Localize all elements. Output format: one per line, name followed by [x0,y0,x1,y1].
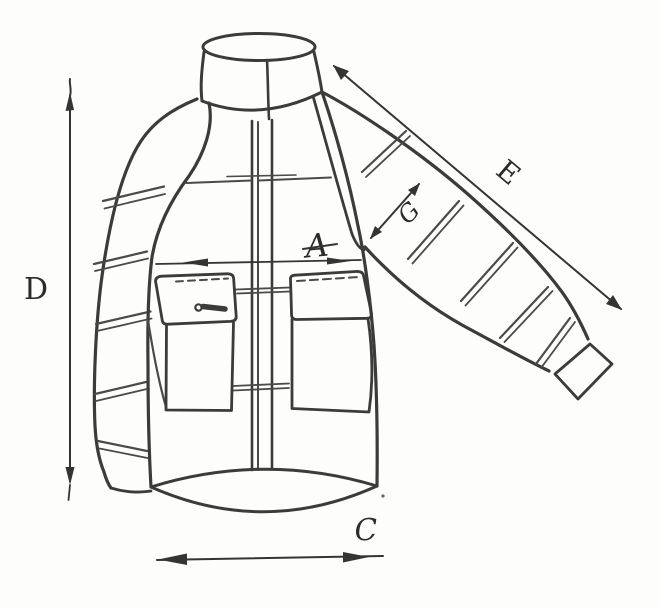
right-band-1b [366,136,410,177]
right-pocket-flap-stitch [297,277,359,281]
chest-seam-double [227,175,296,177]
arrowhead-left-icon [158,554,187,566]
waist-seam-2 [233,384,289,387]
right-band-4b [505,291,553,342]
right-sleeve-cuff [555,344,612,399]
left-band-4b [96,389,149,402]
zipper-pull-tab-icon [203,307,225,310]
label-C: C [354,512,379,548]
waist-seam-1b [237,292,290,294]
collar-right-edge [314,52,322,92]
right-front-edge [322,92,377,486]
label-D: D [24,272,48,307]
ink-speck [381,494,384,497]
arrowhead-left-icon [183,259,208,267]
arrowhead-right-icon [343,552,369,563]
arrowhead-down-icon [66,467,75,485]
jacket-sketch [94,34,612,512]
left-band-3 [96,312,151,325]
chest-seam-right [259,178,332,181]
waist-seam-2b [234,388,290,391]
collar-bottom-edge [202,92,322,110]
left-sleeve-overlap-line [148,320,166,407]
left-pocket [156,274,237,411]
dimension-arrow-E [333,65,622,310]
right-band-4 [500,287,548,338]
right-sleeve-bottom-edge [365,247,549,371]
right-pocket [290,271,371,412]
left-band-3b [97,319,152,332]
arrowhead-right-icon [327,258,351,265]
label-E: E [490,153,527,191]
dimension-arrow-D [66,79,75,500]
right-band-3b [466,248,518,306]
collar [201,34,322,120]
left-band-4 [95,382,148,395]
left-sleeve [94,99,197,492]
right-cuff-seam [536,318,570,364]
scanned-sketch-page: A C D E G [0,0,661,607]
collar-left-edge [201,52,204,101]
dimension-arrow-C [157,552,383,565]
right-pocket-body [292,319,372,413]
hem-top-curve [151,469,377,487]
body [148,92,385,512]
left-band-2 [94,252,147,265]
left-pocket-flap-stitch [176,279,228,282]
right-band-3 [461,243,513,301]
hem-bottom-curve [151,486,377,512]
label-G: G [392,196,425,229]
left-pocket-flap [156,274,237,324]
dimension-labels: A C D E G [24,153,527,548]
right-band-1 [362,131,406,172]
left-pocket-body [166,323,234,411]
jacket-measurement-diagram: A C D E G [0,0,661,607]
collar-top-ellipse [203,34,315,61]
waist-seam-1 [236,288,290,290]
chest-seam-left [187,181,252,184]
right-sleeve [322,92,612,399]
left-band-1 [103,187,164,202]
left-band-1b [105,194,166,209]
left-sleeve-outer-edge [94,99,197,488]
left-sleeve-cuff-bottom [111,488,151,492]
